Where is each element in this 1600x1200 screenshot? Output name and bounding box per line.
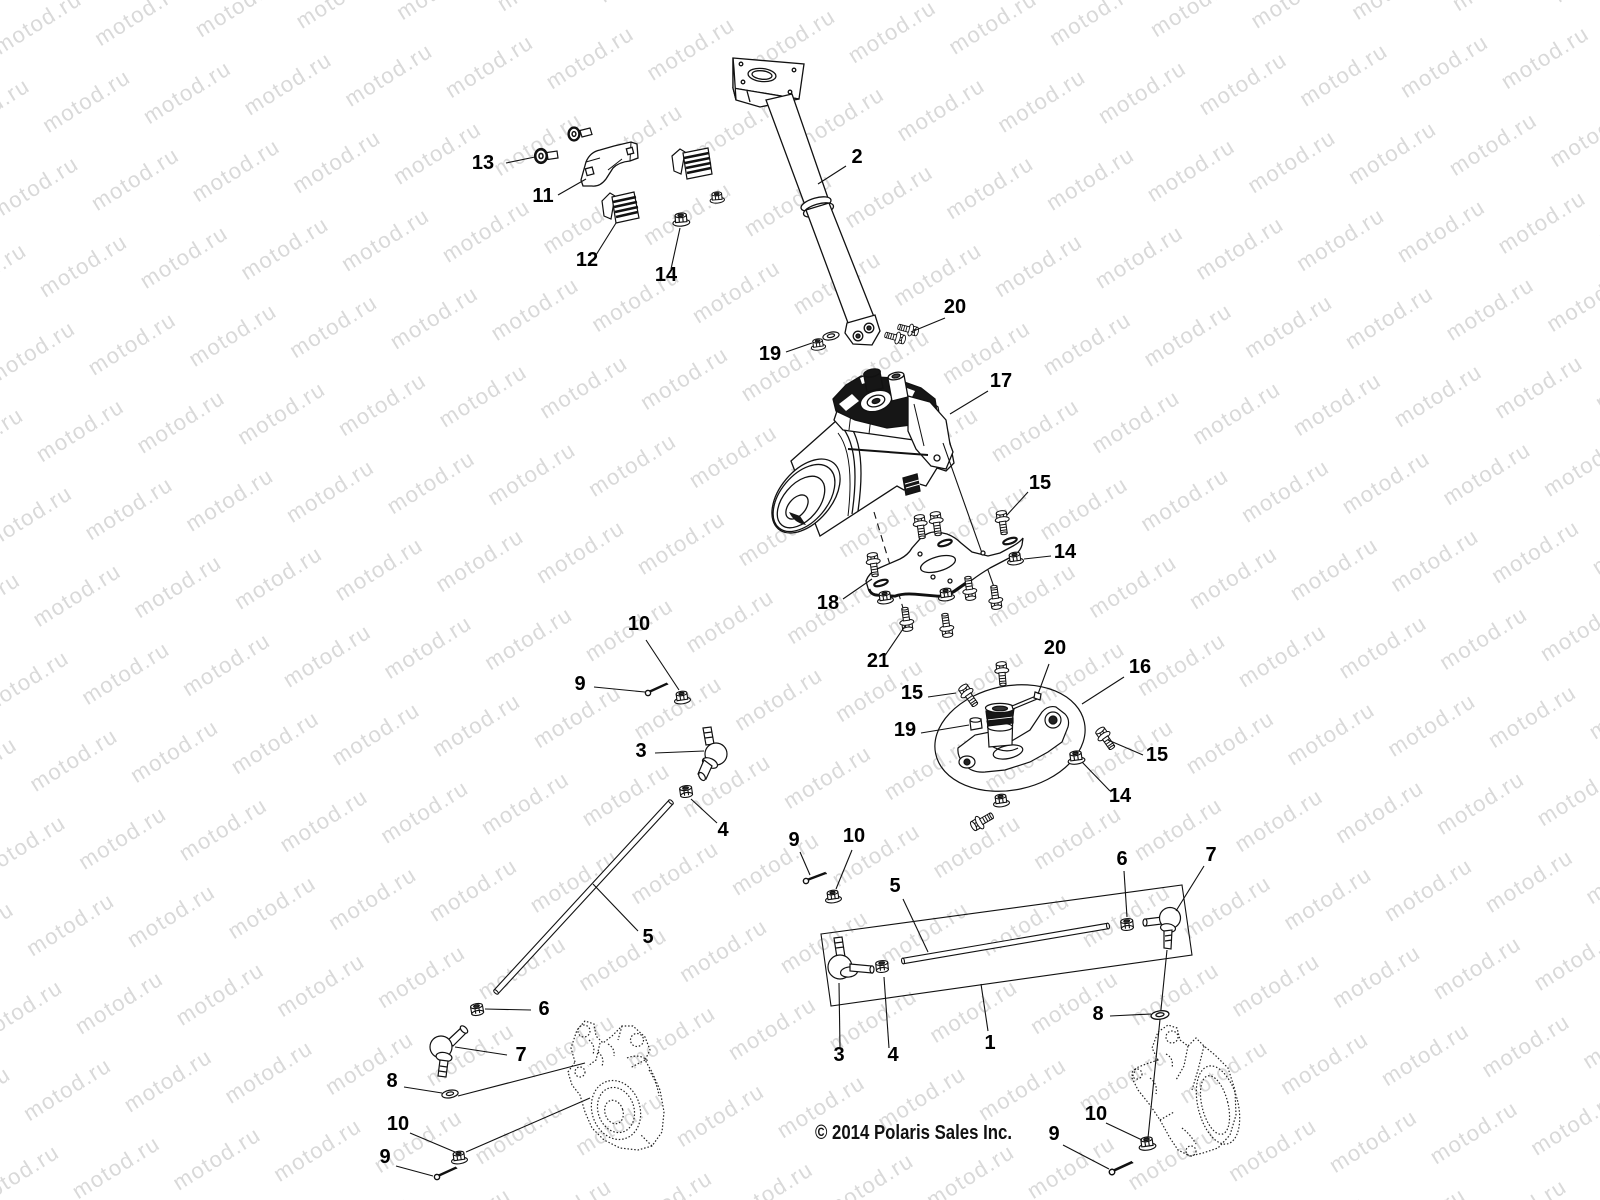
svg-text:9: 9	[788, 829, 799, 851]
svg-text:15: 15	[1146, 744, 1168, 766]
svg-text:9: 9	[574, 673, 585, 695]
svg-text:3: 3	[635, 740, 646, 762]
svg-text:5: 5	[889, 875, 900, 897]
svg-text:19: 19	[894, 719, 916, 741]
svg-text:11: 11	[532, 185, 553, 207]
svg-text:14: 14	[1109, 785, 1132, 807]
svg-text:14: 14	[655, 264, 678, 286]
svg-text:3: 3	[833, 1044, 844, 1066]
svg-text:12: 12	[576, 249, 598, 271]
svg-text:5: 5	[642, 926, 653, 948]
svg-text:7: 7	[515, 1044, 526, 1066]
svg-text:10: 10	[628, 613, 650, 635]
svg-text:21: 21	[867, 650, 889, 672]
svg-text:19: 19	[759, 343, 781, 365]
svg-text:© 2014 Polaris Sales Inc.: © 2014 Polaris Sales Inc.	[815, 1122, 1012, 1144]
svg-text:8: 8	[1092, 1003, 1103, 1025]
svg-text:2: 2	[851, 146, 862, 168]
svg-text:13: 13	[472, 152, 494, 174]
svg-text:20: 20	[944, 296, 966, 318]
svg-text:10: 10	[387, 1113, 409, 1135]
svg-text:15: 15	[901, 682, 923, 704]
svg-text:10: 10	[843, 825, 865, 847]
svg-text:18: 18	[817, 592, 839, 614]
svg-text:20: 20	[1044, 637, 1066, 659]
svg-text:1: 1	[984, 1032, 995, 1054]
svg-text:6: 6	[1116, 848, 1127, 870]
svg-text:16: 16	[1129, 656, 1151, 678]
svg-text:15: 15	[1029, 472, 1051, 494]
svg-text:14: 14	[1054, 541, 1077, 563]
svg-text:10: 10	[1085, 1103, 1107, 1125]
svg-text:7: 7	[1205, 844, 1216, 866]
svg-text:17: 17	[990, 370, 1012, 392]
svg-text:6: 6	[538, 998, 549, 1020]
svg-text:9: 9	[379, 1146, 390, 1168]
svg-text:4: 4	[717, 819, 729, 841]
svg-text:8: 8	[386, 1070, 397, 1092]
svg-text:9: 9	[1048, 1123, 1059, 1145]
